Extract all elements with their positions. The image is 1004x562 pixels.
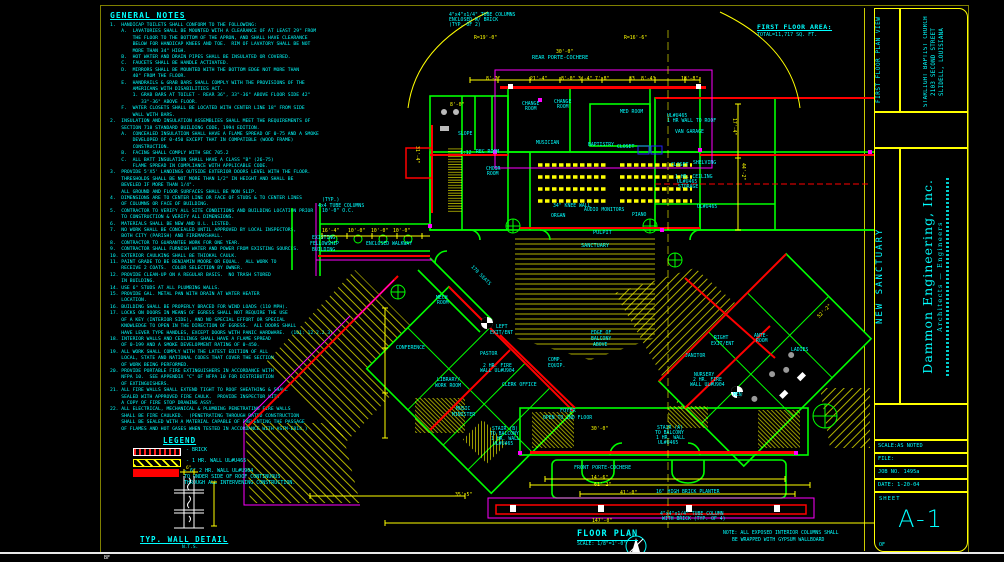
- floor-plan-title: FLOOR PLAN SCALE: 1/8"=1'-0": [577, 529, 638, 547]
- scale-field: SCALE:AS NOTED: [874, 440, 968, 453]
- canopy-hatch-right: [820, 388, 870, 448]
- drawing-sheet: GENERAL NOTES 1. HANDICAP TOILETS SHALL …: [0, 0, 1004, 562]
- columns-note: NOTE: ALL EXPOSED INTERIOR COLUMNS SHALL…: [723, 531, 839, 544]
- title-block: FIRST FLOOR PLAN VIEW STARLIGHT BAPTIST …: [874, 8, 968, 552]
- plan-view-box: FIRST FLOOR PLAN VIEW: [874, 8, 900, 112]
- legend-item-brick: - BRICK: [133, 448, 333, 456]
- titleblock-spacer: [874, 112, 968, 148]
- legend-title: LEGEND: [163, 436, 333, 445]
- sheet-number-box: SHEET A-1 OF: [874, 492, 968, 552]
- first-floor-area-total: TOTAL=11,717 SQ. FT.: [757, 32, 832, 38]
- sheet-bottom-edge: [0, 552, 1004, 554]
- brick-swatch: [133, 448, 181, 456]
- firm-name: Dammon Engineering, Inc.: [920, 179, 935, 374]
- project-box: NEW SANCTUARY: [874, 148, 900, 404]
- first-floor-area-title: FIRST FLOOR AREA:: [757, 23, 832, 31]
- wall-detail-top-dim: 6": [186, 466, 191, 471]
- firm-address-microtext: [946, 176, 949, 376]
- first-floor-area: FIRST FLOOR AREA: TOTAL=11,717 SQ. FT.: [757, 23, 832, 38]
- legend-item-1hr-wall: - 1 HR. WALL UL#U465: [133, 459, 333, 467]
- firm-subtitle: Architects — Engineers: [936, 221, 944, 332]
- date-field: DATE: 1-20-04: [874, 479, 968, 492]
- titleblock-spacer-2: [874, 404, 968, 440]
- job-number-field: JOB NO. 1495a: [874, 466, 968, 479]
- wall-detail-scale: N.T.S.: [182, 545, 198, 550]
- theater-seat-rows: [538, 165, 692, 201]
- one-hour-wall-swatch: [133, 459, 181, 467]
- bottom-code: BF: [104, 555, 110, 561]
- wall-detail-drawing: [140, 468, 250, 534]
- client-box: STARLIGHT BAPTIST CHURCH 2103 SECOND STR…: [900, 8, 968, 112]
- typ-wall-detail: 6" TYP. WALL DETAIL N.T.S.: [140, 468, 260, 538]
- file-field: FILE:: [874, 453, 968, 466]
- wall-detail-title: TYP. WALL DETAIL: [140, 535, 228, 544]
- sheet-number: A-1: [898, 505, 944, 533]
- firm-box: Dammon Engineering, Inc. Architects — En…: [900, 148, 968, 404]
